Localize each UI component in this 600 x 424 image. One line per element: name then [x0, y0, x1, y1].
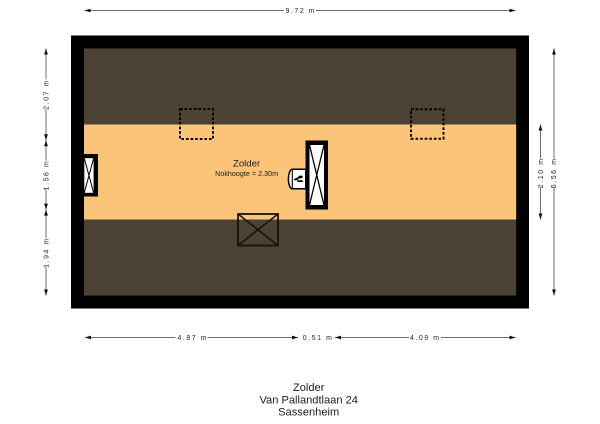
svg-text:Van Pallandtlaan 24: Van Pallandtlaan 24 [259, 394, 357, 406]
svg-text:1.94 m: 1.94 m [43, 237, 50, 268]
svg-text:9.72 m: 9.72 m [285, 8, 316, 15]
svg-text:4.09 m: 4.09 m [410, 335, 441, 342]
svg-text:2.07 m: 2.07 m [43, 79, 50, 110]
svg-text:1.56 m: 1.56 m [43, 160, 50, 191]
svg-text:0.51 m: 0.51 m [303, 335, 334, 342]
svg-text:2.10 m: 2.10 m [538, 157, 545, 188]
svg-text:5.56 m: 5.56 m [551, 157, 558, 188]
svg-text:Nokhoogte = 2.30m: Nokhoogte = 2.30m [215, 169, 278, 178]
svg-text:Zolder: Zolder [233, 158, 261, 169]
svg-text:Sassenheim: Sassenheim [278, 407, 339, 419]
svg-text:4.87 m: 4.87 m [177, 335, 208, 342]
svg-text:Zolder: Zolder [293, 382, 325, 394]
